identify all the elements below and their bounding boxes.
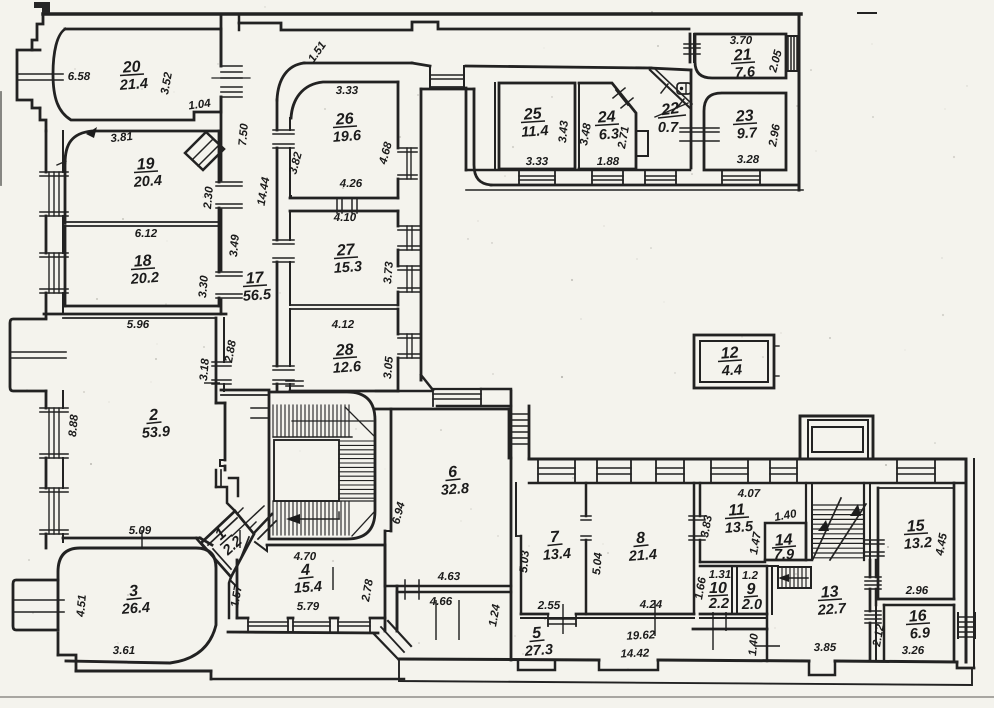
svg-text:3.43: 3.43 xyxy=(557,119,571,143)
svg-text:20.2: 20.2 xyxy=(129,270,159,288)
svg-text:19.6: 19.6 xyxy=(332,128,362,146)
svg-text:15.3: 15.3 xyxy=(333,259,362,277)
svg-text:5.04: 5.04 xyxy=(591,551,605,575)
svg-text:4.26: 4.26 xyxy=(339,178,363,190)
svg-text:3.33: 3.33 xyxy=(336,85,359,97)
svg-text:3.05: 3.05 xyxy=(382,355,396,379)
svg-text:21.4: 21.4 xyxy=(118,76,148,94)
svg-text:21.4: 21.4 xyxy=(627,547,657,565)
svg-text:3.30: 3.30 xyxy=(197,274,211,298)
svg-text:6.12: 6.12 xyxy=(135,228,158,240)
svg-text:4.07: 4.07 xyxy=(737,488,761,500)
svg-text:13.4: 13.4 xyxy=(542,546,571,564)
svg-text:9.7: 9.7 xyxy=(736,125,758,142)
svg-text:7.6: 7.6 xyxy=(734,64,756,81)
svg-text:26.4: 26.4 xyxy=(120,600,150,618)
svg-text:2.0: 2.0 xyxy=(741,597,762,613)
svg-text:4.4: 4.4 xyxy=(720,362,742,379)
svg-text:11.4: 11.4 xyxy=(521,123,549,141)
svg-text:5.09: 5.09 xyxy=(129,525,152,537)
svg-text:5.03: 5.03 xyxy=(518,549,532,573)
svg-text:3.70: 3.70 xyxy=(730,35,753,47)
svg-text:4.51: 4.51 xyxy=(75,594,89,618)
svg-text:1.88: 1.88 xyxy=(597,156,620,168)
svg-text:2.55: 2.55 xyxy=(537,600,561,612)
svg-text:3.81: 3.81 xyxy=(110,131,134,145)
svg-text:53.9: 53.9 xyxy=(141,424,170,442)
svg-text:12.6: 12.6 xyxy=(332,359,362,377)
svg-text:4.12: 4.12 xyxy=(331,319,355,331)
svg-text:2.2: 2.2 xyxy=(708,596,729,612)
svg-text:2.96: 2.96 xyxy=(905,585,929,597)
svg-text:13.5: 13.5 xyxy=(724,519,754,537)
svg-text:3.26: 3.26 xyxy=(902,645,925,657)
svg-text:3.85: 3.85 xyxy=(814,642,837,654)
svg-text:7.50: 7.50 xyxy=(237,122,251,146)
svg-text:6.9: 6.9 xyxy=(909,625,930,642)
svg-text:6.58: 6.58 xyxy=(68,71,91,83)
svg-text:13.2: 13.2 xyxy=(903,535,932,553)
svg-text:4.66: 4.66 xyxy=(429,596,453,608)
svg-text:14.42: 14.42 xyxy=(620,647,650,660)
svg-text:4.10: 4.10 xyxy=(333,212,357,224)
svg-text:3.33: 3.33 xyxy=(526,156,549,168)
svg-text:7.9: 7.9 xyxy=(774,547,794,563)
svg-text:22.7: 22.7 xyxy=(816,601,847,619)
svg-text:32.8: 32.8 xyxy=(440,481,470,499)
svg-text:9: 9 xyxy=(747,581,756,598)
svg-text:4.24: 4.24 xyxy=(639,599,663,611)
svg-text:19.62: 19.62 xyxy=(626,629,656,643)
svg-text:3.73: 3.73 xyxy=(382,260,396,284)
svg-text:15.4: 15.4 xyxy=(293,579,322,597)
svg-text:27.3: 27.3 xyxy=(523,642,553,660)
svg-text:5.79: 5.79 xyxy=(297,601,320,613)
svg-text:20.4: 20.4 xyxy=(132,173,162,191)
svg-text:5.96: 5.96 xyxy=(127,319,150,331)
svg-text:56.5: 56.5 xyxy=(242,287,272,305)
svg-text:3.49: 3.49 xyxy=(228,233,242,257)
svg-text:3.28: 3.28 xyxy=(737,154,760,166)
svg-text:4.63: 4.63 xyxy=(437,571,461,583)
svg-text:0.7: 0.7 xyxy=(658,120,679,136)
svg-text:3.18: 3.18 xyxy=(198,357,212,381)
svg-text:8.88: 8.88 xyxy=(67,413,81,437)
svg-text:1.40: 1.40 xyxy=(747,632,761,656)
svg-text:2.30: 2.30 xyxy=(202,185,216,210)
svg-text:3.61: 3.61 xyxy=(113,645,135,657)
